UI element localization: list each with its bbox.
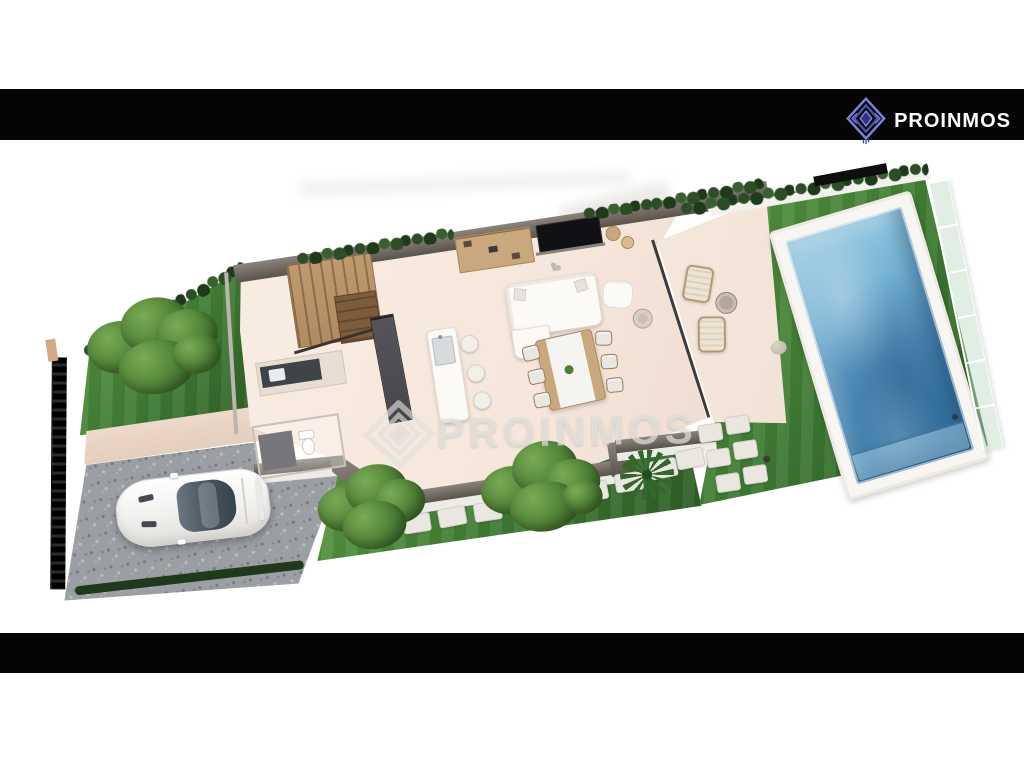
stepping-stone	[742, 464, 768, 485]
car-hood-vent	[141, 521, 156, 527]
plot-render: ❤	[31, 166, 978, 617]
footer-bar	[0, 633, 1024, 673]
dining-chair	[600, 354, 618, 370]
stepping-stone	[705, 447, 731, 468]
watermark-text: PROINMOS	[436, 405, 697, 458]
watermark-diamond-icon	[361, 400, 436, 469]
watermark: PROINMOS	[361, 395, 697, 469]
shelf-decor-box	[463, 240, 472, 247]
lounge-chair	[698, 316, 726, 352]
stepping-stone	[732, 439, 758, 460]
boundary-fence	[50, 357, 67, 589]
sofa-pillow	[513, 288, 526, 301]
dining-chair	[606, 377, 624, 394]
car-mirror	[178, 539, 187, 545]
gate-post	[45, 339, 58, 362]
stepping-stone	[697, 422, 723, 443]
stepping-stone	[724, 414, 750, 435]
island-sink	[431, 335, 456, 366]
nested-diamond-icon	[846, 97, 886, 145]
shelf-decor-box	[512, 252, 521, 259]
car-mirror	[170, 473, 179, 479]
real-estate-render-page: ❤	[0, 0, 1024, 768]
lounge-chair	[681, 264, 715, 304]
brand-name: PROINMOS	[894, 110, 1011, 133]
proinmos-logo: PROINMOS	[846, 97, 1011, 145]
kitchen-sink	[268, 368, 286, 382]
pool-ladder	[951, 413, 958, 420]
stepping-stone	[715, 472, 741, 493]
dining-chair	[595, 331, 612, 346]
garden-tree	[79, 279, 228, 408]
pool-step	[851, 421, 970, 481]
bathroom-vanity	[258, 430, 297, 471]
render-edge-wisp	[300, 170, 630, 197]
armchair	[602, 279, 634, 309]
